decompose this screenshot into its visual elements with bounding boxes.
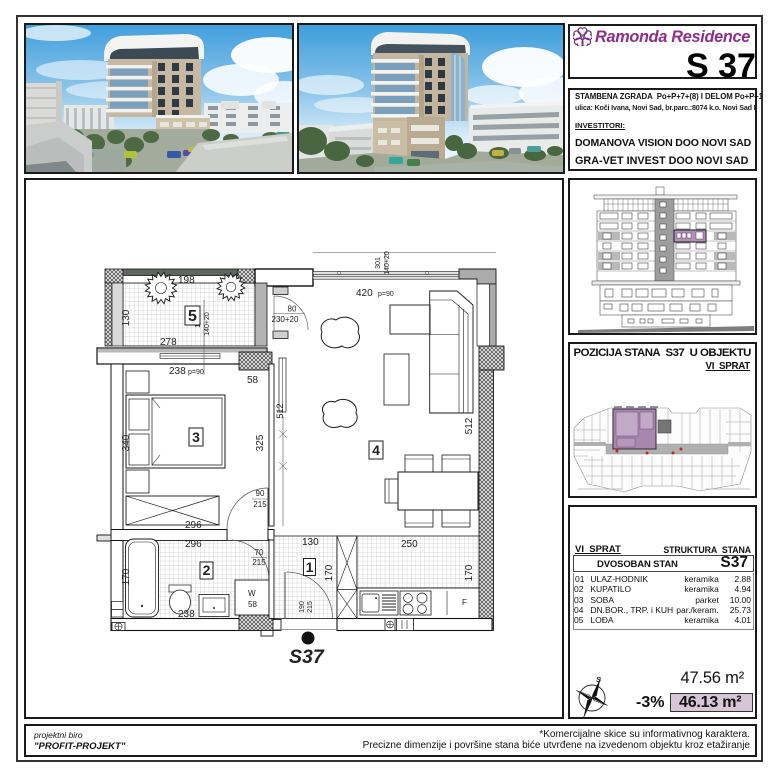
svg-text:512: 512 — [464, 417, 475, 434]
svg-text:90: 90 — [256, 489, 265, 498]
svg-text:70: 70 — [255, 548, 264, 557]
svg-text:190: 190 — [299, 601, 306, 613]
svg-text:215: 215 — [253, 500, 267, 509]
svg-text:2: 2 — [203, 562, 211, 578]
svg-text:512: 512 — [275, 403, 285, 418]
svg-text:230+20: 230+20 — [272, 315, 299, 324]
svg-text:4: 4 — [372, 442, 380, 458]
svg-text:340: 340 — [121, 434, 132, 451]
svg-text:301: 301 — [375, 257, 382, 269]
svg-text:130: 130 — [302, 537, 319, 548]
svg-text:F: F — [462, 598, 467, 607]
svg-text:130: 130 — [121, 309, 132, 326]
svg-text:1: 1 — [306, 559, 314, 575]
svg-text:296: 296 — [185, 520, 202, 531]
svg-text:325: 325 — [255, 434, 266, 451]
svg-text:p=90: p=90 — [188, 369, 204, 376]
svg-text:198: 198 — [178, 275, 195, 286]
svg-text:p=90: p=90 — [378, 291, 394, 298]
svg-text:250: 250 — [401, 539, 418, 550]
svg-text:215: 215 — [307, 601, 314, 613]
svg-text:S: S — [596, 675, 601, 684]
svg-text:3: 3 — [192, 429, 200, 445]
svg-text:58: 58 — [247, 375, 259, 386]
svg-text:W: W — [248, 589, 256, 598]
svg-text:296: 296 — [185, 539, 202, 550]
svg-text:238: 238 — [178, 609, 195, 620]
svg-text:58: 58 — [248, 600, 257, 609]
svg-text:5: 5 — [188, 308, 197, 325]
svg-text:278: 278 — [160, 337, 177, 348]
svg-text:215: 215 — [252, 558, 266, 567]
svg-text:420: 420 — [356, 288, 373, 299]
svg-text:S37: S37 — [289, 646, 325, 668]
svg-text:140+20: 140+20 — [384, 251, 391, 275]
svg-text:80: 80 — [288, 305, 297, 314]
svg-text:238: 238 — [169, 366, 186, 377]
svg-text:170: 170 — [464, 564, 475, 581]
svg-text:140+20: 140+20 — [204, 312, 211, 336]
svg-text:170: 170 — [324, 564, 335, 581]
svg-text:170: 170 — [121, 568, 132, 585]
